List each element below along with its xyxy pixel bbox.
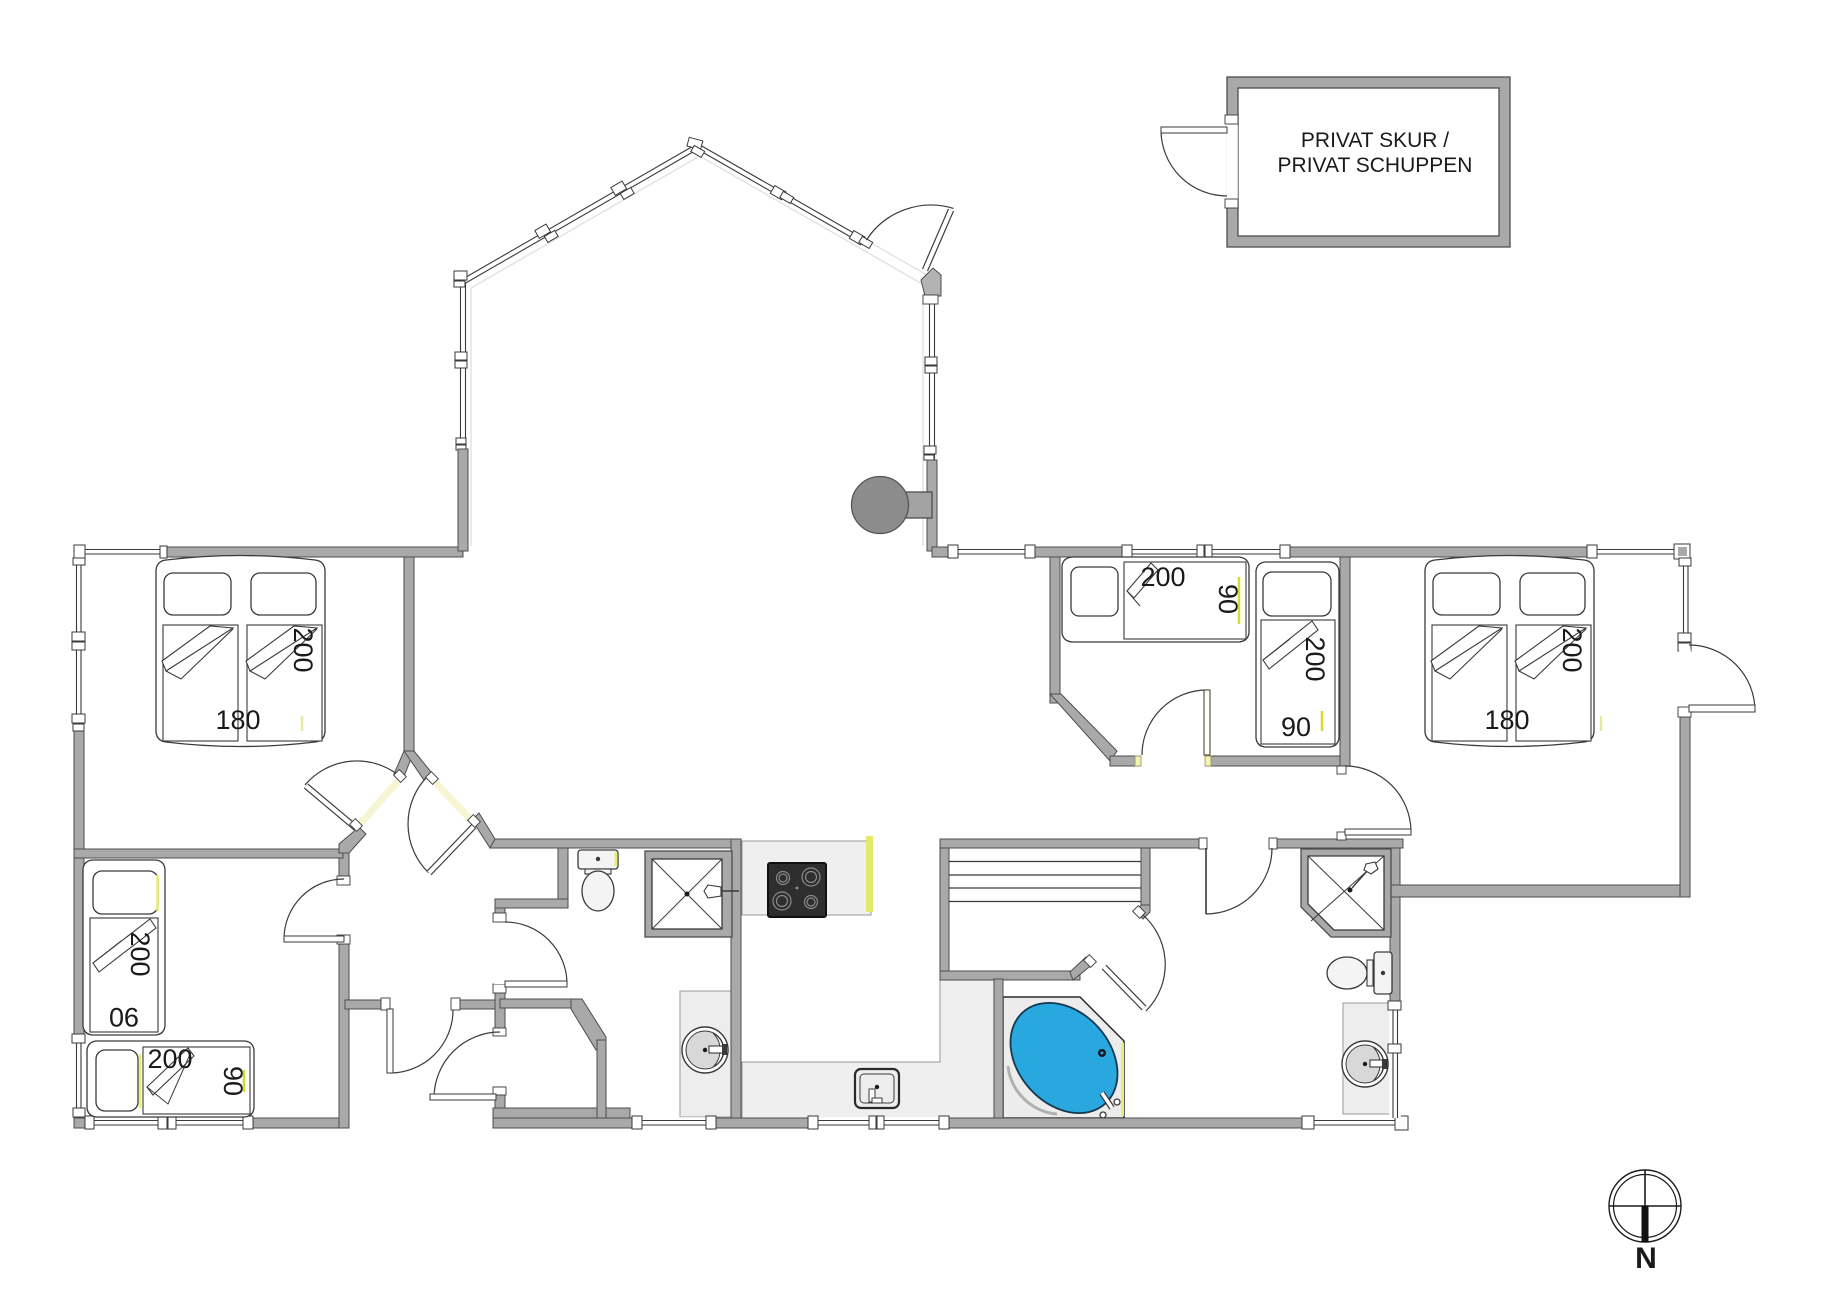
svg-text:90: 90 bbox=[1281, 712, 1311, 742]
svg-text:N: N bbox=[1635, 1242, 1657, 1275]
svg-text:200: 200 bbox=[1300, 636, 1330, 681]
svg-text:180: 180 bbox=[1484, 705, 1529, 735]
svg-text:PRIVAT SCHUPPEN: PRIVAT SCHUPPEN bbox=[1278, 154, 1473, 177]
svg-text:90: 90 bbox=[218, 1066, 248, 1096]
svg-text:90: 90 bbox=[1213, 584, 1243, 614]
svg-text:200: 200 bbox=[1557, 627, 1587, 672]
svg-text:200: 200 bbox=[1140, 562, 1185, 592]
svg-text:200: 200 bbox=[288, 627, 318, 672]
svg-text:90: 90 bbox=[109, 1002, 139, 1032]
svg-text:200: 200 bbox=[125, 931, 155, 976]
svg-text:200: 200 bbox=[147, 1044, 192, 1074]
svg-text:PRIVAT SKUR /: PRIVAT SKUR / bbox=[1301, 129, 1449, 152]
svg-text:180: 180 bbox=[215, 705, 260, 735]
